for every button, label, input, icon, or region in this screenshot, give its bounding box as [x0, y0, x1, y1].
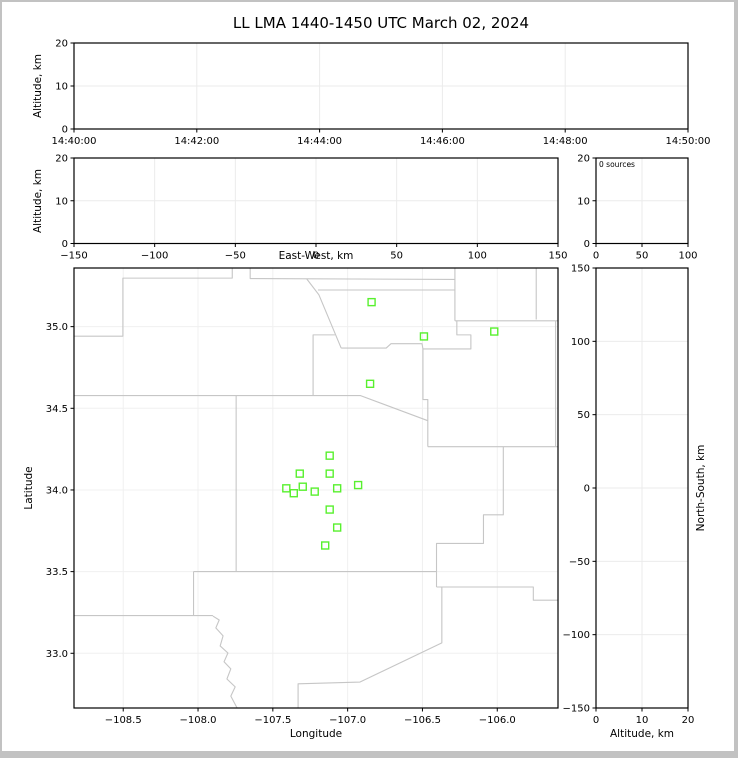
time-height-panel: 14:40:0014:42:0014:44:0014:46:0014:48:00…	[74, 43, 688, 129]
figure-title: LL LMA 1440-1450 UTC March 02, 2024	[233, 14, 529, 32]
y-tick-label: −100	[563, 630, 590, 641]
x-tick-label: −107.5	[254, 715, 291, 726]
figure-border-bottom	[0, 751, 738, 758]
county-boundary	[313, 335, 335, 396]
lma-station-marker	[299, 483, 306, 490]
x-tick-label: 50	[636, 251, 649, 262]
ns-height-ylabel: North-South, km	[695, 445, 707, 532]
y-tick-label: −150	[563, 704, 590, 715]
ew-height-xlabel: East-West, km	[279, 250, 354, 262]
lma-station-marker	[367, 380, 374, 387]
x-tick-label: 10	[636, 715, 649, 726]
east-west-height-panel: −150−100−5005010015001020	[74, 158, 558, 244]
x-tick-label: −150	[60, 251, 87, 262]
lma-figure: LL LMA 1440-1450 UTC March 02, 2024 14:4…	[0, 0, 738, 758]
y-tick-label: −50	[569, 557, 590, 568]
x-tick-label: −100	[141, 251, 168, 262]
y-tick-label: 20	[577, 154, 590, 165]
y-tick-label: 0	[584, 484, 590, 495]
lma-station-marker	[334, 485, 341, 492]
y-tick-label: 10	[577, 196, 590, 207]
x-tick-label: 150	[548, 251, 567, 262]
map-ylabel: Latitude	[23, 466, 35, 509]
figure-border-right	[734, 0, 738, 758]
x-tick-label: 14:44:00	[297, 136, 342, 147]
north-south-height-panel: 01020−150−100−50050100150	[596, 268, 688, 708]
y-tick-label: 33.0	[46, 649, 68, 660]
county-boundary	[298, 587, 442, 708]
y-tick-label: 35.0	[46, 322, 68, 333]
lma-station-marker	[322, 542, 329, 549]
figure-border-left	[0, 0, 2, 758]
lma-station-marker	[296, 470, 303, 477]
x-tick-label: 14:48:00	[543, 136, 588, 147]
x-tick-label: 0	[593, 251, 599, 262]
county-boundary	[341, 321, 471, 349]
county-boundary	[437, 447, 504, 587]
x-tick-label: −107.0	[329, 715, 366, 726]
y-tick-label: 10	[55, 82, 68, 93]
y-tick-label: 0	[62, 125, 68, 136]
x-tick-label: −106.5	[404, 715, 441, 726]
lma-station-marker	[334, 524, 341, 531]
county-boundary	[213, 616, 237, 708]
x-tick-label: −108.0	[180, 715, 217, 726]
figure-border-top	[0, 0, 738, 2]
lma-station-marker	[491, 328, 498, 335]
y-tick-label: 100	[571, 337, 590, 348]
y-tick-label: 0	[62, 239, 68, 250]
lma-station-marker	[290, 490, 297, 497]
county-boundary	[250, 268, 455, 279]
x-tick-label: 0	[593, 715, 599, 726]
x-tick-label: −106.0	[479, 715, 516, 726]
y-tick-label: 20	[55, 39, 68, 50]
y-tick-label: 34.5	[46, 404, 68, 415]
plan-view-map-panel: −108.5−108.0−107.5−107.0−106.5−106.033.0…	[74, 268, 558, 708]
lma-station-marker	[326, 506, 333, 513]
source-count-annotation: 0 sources	[599, 160, 635, 169]
lma-station-marker	[355, 482, 362, 489]
x-tick-label: −108.5	[105, 715, 142, 726]
x-tick-label: 20	[682, 715, 695, 726]
ew-height-ylabel: Altitude, km	[32, 169, 44, 233]
lma-station-marker	[420, 333, 427, 340]
map-xlabel: Longitude	[290, 728, 342, 740]
county-boundary	[74, 268, 232, 336]
lma-station-marker	[368, 299, 375, 306]
lma-station-marker	[326, 470, 333, 477]
y-tick-label: 34.0	[46, 485, 68, 496]
y-tick-label: 150	[571, 264, 590, 275]
time-height-ylabel: Altitude, km	[32, 54, 44, 118]
source-histogram-panel: 05010001020	[596, 158, 688, 244]
y-tick-label: 20	[55, 154, 68, 165]
y-tick-label: 50	[577, 410, 590, 421]
x-tick-label: 14:50:00	[666, 136, 711, 147]
county-boundary	[423, 349, 428, 447]
ns-height-xlabel: Altitude, km	[610, 728, 674, 740]
y-tick-label: 10	[55, 196, 68, 207]
x-tick-label: 14:46:00	[420, 136, 465, 147]
lma-station-marker	[311, 488, 318, 495]
x-tick-label: 14:40:00	[52, 136, 97, 147]
y-tick-label: 0	[584, 239, 590, 250]
x-tick-label: 100	[468, 251, 487, 262]
lma-station-marker	[283, 485, 290, 492]
county-boundary	[307, 279, 341, 348]
x-tick-label: 100	[678, 251, 697, 262]
y-tick-label: 33.5	[46, 567, 68, 578]
x-tick-label: −50	[225, 251, 246, 262]
x-tick-label: 14:42:00	[174, 136, 219, 147]
lma-station-marker	[326, 452, 333, 459]
x-tick-label: 50	[390, 251, 403, 262]
